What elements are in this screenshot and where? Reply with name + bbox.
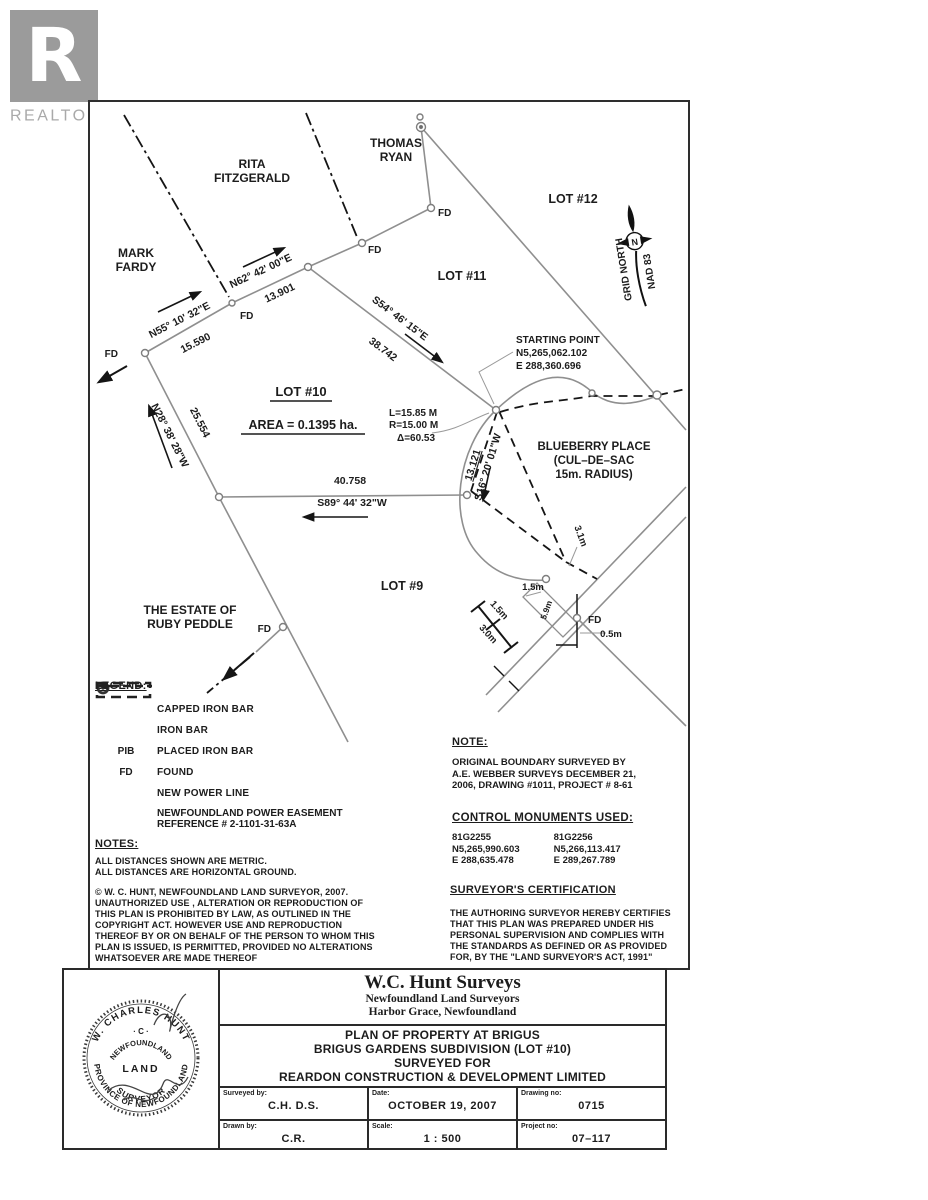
drawing-no-cell: Drawing no: 0715 <box>518 1088 665 1119</box>
dim-0-5m: 0.5m <box>600 629 622 640</box>
dim-1-5m-a: 1.5m <box>488 599 511 622</box>
certification-block: SURVEYOR'S CERTIFICATION THE AUTHORING S… <box>450 884 685 963</box>
note-title: NOTE: <box>452 736 682 748</box>
project-no-cell: Project no: 07–117 <box>518 1121 665 1148</box>
label-thomas: THOMAS <box>370 136 422 150</box>
distance-n55: 15.590 <box>179 331 213 356</box>
legend-block: LEGEND: CAPPED IRON BAR IRON BAR PIB P <box>95 680 343 834</box>
legend-row: NEWFOUNDLAND POWER EASEMENT REFERENCE # … <box>95 804 343 834</box>
notes-block: NOTES: ALL DISTANCES SHOWN ARE METRIC. A… <box>95 838 375 964</box>
svg-text:RYAN: RYAN <box>380 150 412 164</box>
label-blueberry: BLUEBERRY PLACE <box>537 441 650 453</box>
svg-text:NEWFOUNDLAND: NEWFOUNDLAND <box>108 1038 174 1062</box>
svg-text:FD: FD <box>438 208 451 219</box>
realtor-r-letter: R <box>26 19 83 93</box>
date-cell: Date: OCTOBER 19, 2007 <box>369 1088 518 1119</box>
svg-text:FD: FD <box>240 311 253 322</box>
surveyed-by-cell: Surveyed by: C.H. D.S. <box>220 1088 369 1119</box>
distance-s54: 38.742 <box>366 335 399 364</box>
label-area: AREA = 0.1395 ha. <box>249 418 358 432</box>
label-estate: THE ESTATE OF <box>144 603 237 617</box>
stamp-arc-top: W. CHARLES HUNT <box>90 1005 192 1044</box>
dim-5-9m: 5.9m <box>538 599 554 621</box>
surveyor-stamp-cell: W. CHARLES HUNT PROVINCE OF NEWFOUNDLAND… <box>64 970 220 1148</box>
legend-row: CAPPED IRON BAR <box>95 699 343 720</box>
legend-row: PIB PLACED IRON BAR <box>95 741 343 762</box>
curve-length: L=15.85 M <box>389 408 437 419</box>
label-mark: MARK <box>118 246 154 260</box>
svg-text:FD: FD <box>588 615 601 626</box>
notes-title: NOTES: <box>95 838 375 850</box>
control-monuments-block: CONTROL MONUMENTS USED: 81G2255 N5,265,9… <box>452 812 687 867</box>
label-rita: RITA <box>238 157 265 171</box>
legend-row: FD FOUND <box>95 762 343 783</box>
plan-title-line4: REARDON CONSTRUCTION & DEVELOPMENT LIMIT… <box>220 1070 665 1084</box>
pib-symbol: PIB <box>95 746 157 757</box>
label-lot9: LOT #9 <box>381 579 423 593</box>
certification-title: SURVEYOR'S CERTIFICATION <box>450 884 685 896</box>
svg-text:15m. RADIUS): 15m. RADIUS) <box>555 469 632 481</box>
svg-text:W. CHARLES HUNT: W. CHARLES HUNT <box>90 1005 192 1044</box>
drawn-by-cell: Drawn by: C.R. <box>220 1121 369 1148</box>
svg-text:FD: FD <box>258 624 271 635</box>
fd-symbol: FD <box>95 767 157 778</box>
copyright-paragraph: © W. C. HUNT, NEWFOUNDLAND LAND SURVEYOR… <box>95 887 375 964</box>
dim-3-1m: 3.1m <box>571 524 589 548</box>
note-block: NOTE: ORIGINAL BOUNDARY SURVEYED BY A.E.… <box>452 736 682 792</box>
plan-title-line2: BRIGUS GARDENS SUBDIVISION (LOT #10) <box>220 1042 665 1056</box>
svg-text:FD: FD <box>105 349 118 360</box>
bearing-s89: S89° 44' 32"W <box>317 497 387 509</box>
distance-n62: 13.901 <box>263 281 297 306</box>
stamp-newfoundland: NEWFOUNDLAND <box>108 1038 174 1062</box>
north-arrow-icon: N GRID NORTH NAD 83 <box>609 202 663 310</box>
svg-text:RUBY PEDDLE: RUBY PEDDLE <box>147 617 233 631</box>
starting-point-northing: N5,265,062.102 <box>516 348 588 359</box>
firm-name-cell: W.C. Hunt Surveys Newfoundland Land Surv… <box>220 970 665 1026</box>
scale-cell: Scale: 1 : 500 <box>369 1121 518 1148</box>
starting-point-title: STARTING POINT <box>516 335 600 346</box>
monument-2: 81G2256 N5,266,113.417 E 289,267.789 <box>554 832 621 867</box>
svg-text:FITZGERALD: FITZGERALD <box>214 171 290 185</box>
firm-name: W.C. Hunt Surveys <box>220 972 665 993</box>
plan-title-cell: PLAN OF PROPERTY AT BRIGUS BRIGUS GARDEN… <box>220 1026 665 1088</box>
svg-text:FD: FD <box>368 245 381 256</box>
label-lot11: LOT #11 <box>438 269 487 283</box>
distance-n28: 25.554 <box>187 406 212 440</box>
legend-row: NEW POWER LINE <box>95 783 343 804</box>
svg-text:FARDY: FARDY <box>116 260 157 274</box>
monuments-title: CONTROL MONUMENTS USED: <box>452 812 687 824</box>
dimension-labels: 3.1m 1.5m 3.0m 1.5m 0.5m 5.9m <box>477 524 622 646</box>
starting-point-easting: E 288,360.696 <box>516 361 581 372</box>
distance-s89: 40.758 <box>334 475 366 487</box>
plan-title-line3: SURVEYED FOR <box>220 1056 665 1070</box>
surveyor-seal: W. CHARLES HUNT PROVINCE OF NEWFOUNDLAND… <box>64 970 218 1146</box>
leader-lines <box>432 352 606 633</box>
label-lot12: LOT #12 <box>548 192 597 206</box>
title-block: W. CHARLES HUNT PROVINCE OF NEWFOUNDLAND… <box>62 968 667 1150</box>
nad83-label: NAD 83 <box>642 252 658 289</box>
plan-title-line1: PLAN OF PROPERTY AT BRIGUS <box>220 1028 665 1042</box>
realtor-r-icon: R <box>10 10 98 102</box>
monument-1: 81G2255 N5,265,990.603 E 288,635.478 <box>452 832 520 867</box>
plan-drawing-frame: RITA FITZGERALD THOMAS RYAN MARK FARDY T… <box>88 100 690 970</box>
curve-delta: Δ=60.53 <box>397 433 435 444</box>
stamp-initials: · C · <box>133 1027 149 1036</box>
survey-plan-page: R REALTOR® <box>0 0 928 1200</box>
curve-radius: R=15.00 M <box>389 420 438 431</box>
dim-1-5m-b: 1.5m <box>522 582 544 593</box>
svg-text:(CUL–DE–SAC: (CUL–DE–SAC <box>554 455 635 467</box>
title-block-right: W.C. Hunt Surveys Newfoundland Land Surv… <box>220 970 665 1148</box>
legend-row: IRON BAR <box>95 720 343 741</box>
measurement-ticks <box>471 594 577 691</box>
bearing-labels: N55° 10' 32"E 15.590 N62° 42' 00"E 13.90… <box>147 252 504 509</box>
bearing-n28: N28° 38' 28"W <box>148 402 191 470</box>
dim-3-0m: 3.0m <box>477 623 500 646</box>
label-lot10: LOT #10 <box>275 384 326 399</box>
stamp-land: LAND <box>122 1063 159 1075</box>
